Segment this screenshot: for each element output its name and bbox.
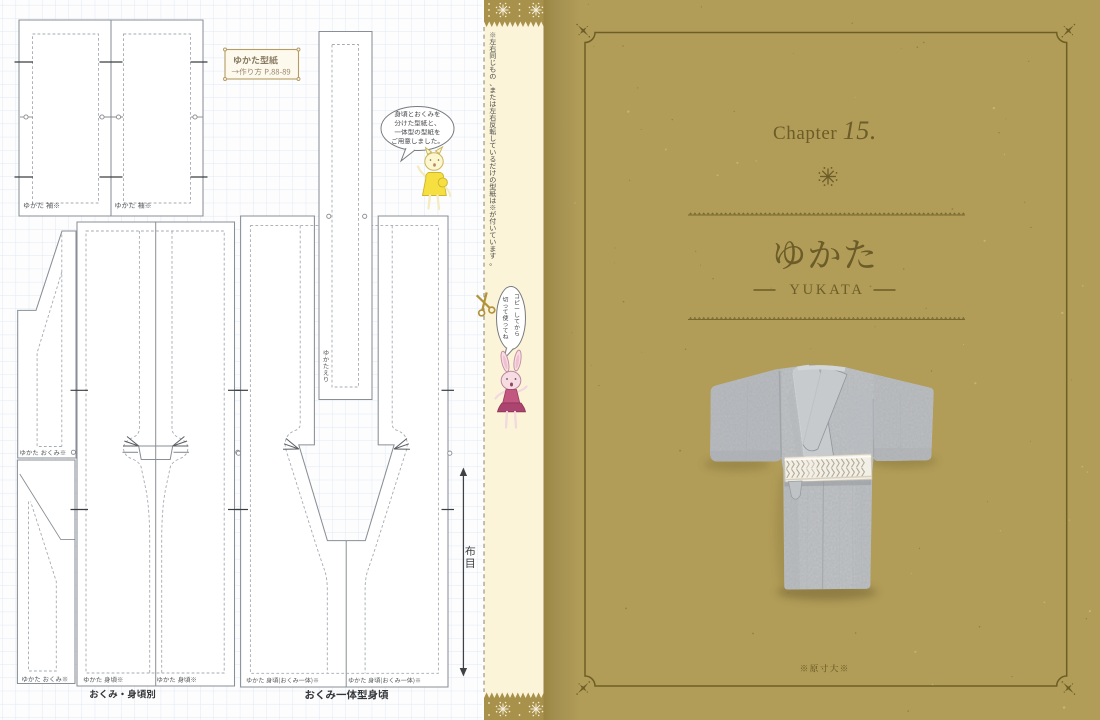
svg-text:YUKATA: YUKATA [789, 282, 864, 298]
